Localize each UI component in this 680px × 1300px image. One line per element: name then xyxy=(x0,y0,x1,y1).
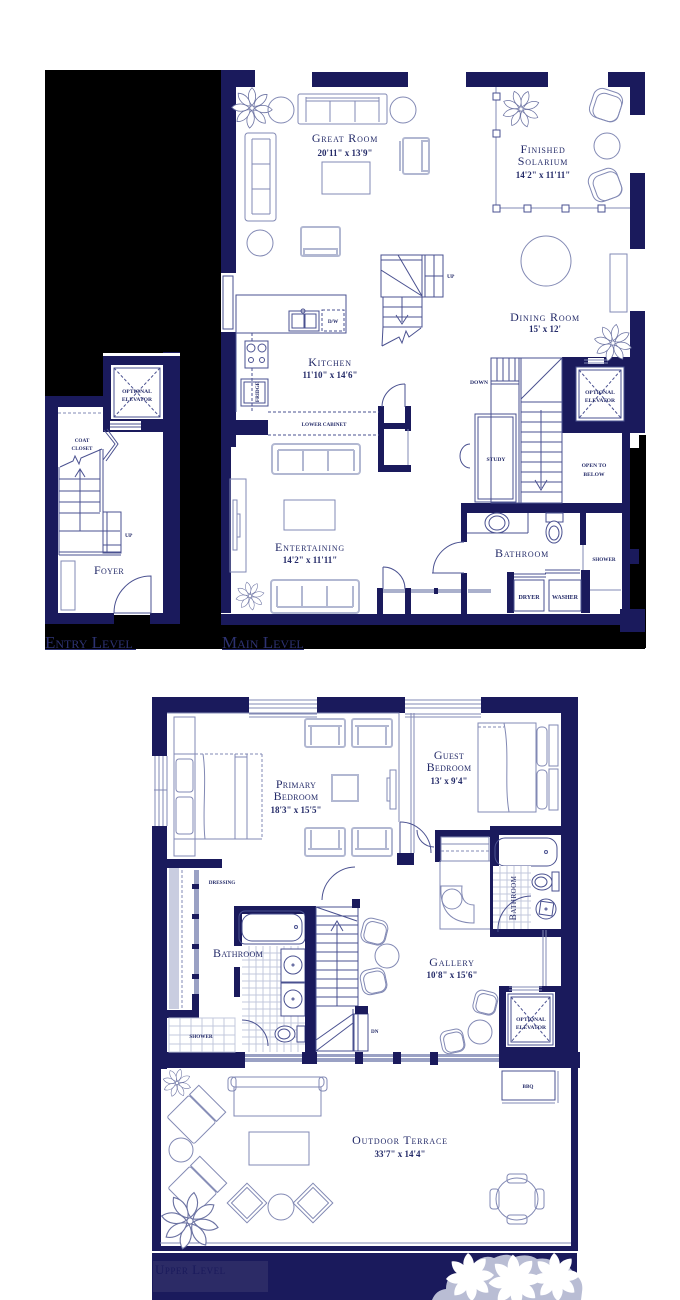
svg-text:10'8" x 15'6": 10'8" x 15'6" xyxy=(427,970,478,980)
svg-text:DRESSING: DRESSING xyxy=(209,880,236,886)
svg-text:OPTIONAL: OPTIONAL xyxy=(585,390,615,396)
svg-text:BELOW: BELOW xyxy=(583,472,605,478)
svg-text:STUDY: STUDY xyxy=(487,457,506,463)
svg-text:DRYER: DRYER xyxy=(518,595,540,601)
svg-text:Outdoor Terrace: Outdoor Terrace xyxy=(352,1133,448,1147)
svg-text:Entertaining: Entertaining xyxy=(275,540,345,554)
svg-text:SHOWER: SHOWER xyxy=(592,557,616,563)
svg-text:DOWN: DOWN xyxy=(470,380,488,386)
svg-text:11'10" x 14'6": 11'10" x 14'6" xyxy=(303,370,358,380)
svg-text:20'11" x 13'9": 20'11" x 13'9" xyxy=(318,148,373,158)
svg-text:Bathroom: Bathroom xyxy=(213,946,263,960)
svg-text:13' x 9'4": 13' x 9'4" xyxy=(431,776,468,786)
svg-text:18'3" x 15'5": 18'3" x 15'5" xyxy=(271,805,322,815)
svg-text:14'2" x 11'11": 14'2" x 11'11" xyxy=(283,555,338,565)
svg-text:D/W: D/W xyxy=(328,319,339,325)
svg-text:15' x 12': 15' x 12' xyxy=(529,324,561,334)
svg-text:Bathroom: Bathroom xyxy=(495,546,549,560)
svg-text:DN: DN xyxy=(371,1029,379,1035)
svg-text:CLOSET: CLOSET xyxy=(71,446,93,452)
svg-text:WASHER: WASHER xyxy=(552,595,579,601)
svg-text:Upper Level: Upper Level xyxy=(155,1262,226,1277)
svg-text:ELEVATOR: ELEVATOR xyxy=(585,398,616,404)
svg-text:14'2" x 11'11": 14'2" x 11'11" xyxy=(516,170,571,180)
svg-text:Great Room: Great Room xyxy=(312,131,378,145)
svg-text:ELEVATOR: ELEVATOR xyxy=(122,397,153,403)
svg-text:SHOWER: SHOWER xyxy=(189,1034,213,1040)
svg-text:Dining Room: Dining Room xyxy=(510,310,580,324)
svg-text:Kitchen: Kitchen xyxy=(308,355,352,369)
svg-text:ELEVATOR: ELEVATOR xyxy=(516,1025,547,1031)
svg-text:UP: UP xyxy=(447,274,455,280)
svg-text:OPEN TO: OPEN TO xyxy=(582,463,607,469)
svg-text:Gallery: Gallery xyxy=(429,955,474,969)
svg-text:Foyer: Foyer xyxy=(94,563,124,577)
svg-text:Bedroom: Bedroom xyxy=(427,760,472,774)
svg-text:FRIDGE: FRIDGE xyxy=(255,381,261,402)
svg-text:Bedroom: Bedroom xyxy=(274,789,319,803)
svg-text:Solarium: Solarium xyxy=(518,154,568,168)
svg-text:33'7" x 14'4": 33'7" x 14'4" xyxy=(375,1149,426,1159)
svg-text:UP: UP xyxy=(125,533,133,539)
svg-text:Bathroom: Bathroom xyxy=(509,875,519,920)
svg-text:LOWER CABINET: LOWER CABINET xyxy=(302,422,347,428)
svg-text:OPTIONAL: OPTIONAL xyxy=(516,1017,546,1023)
svg-text:OPTIONAL: OPTIONAL xyxy=(122,389,152,395)
svg-text:COAT: COAT xyxy=(75,438,90,444)
svg-text:BBQ: BBQ xyxy=(523,1084,534,1090)
